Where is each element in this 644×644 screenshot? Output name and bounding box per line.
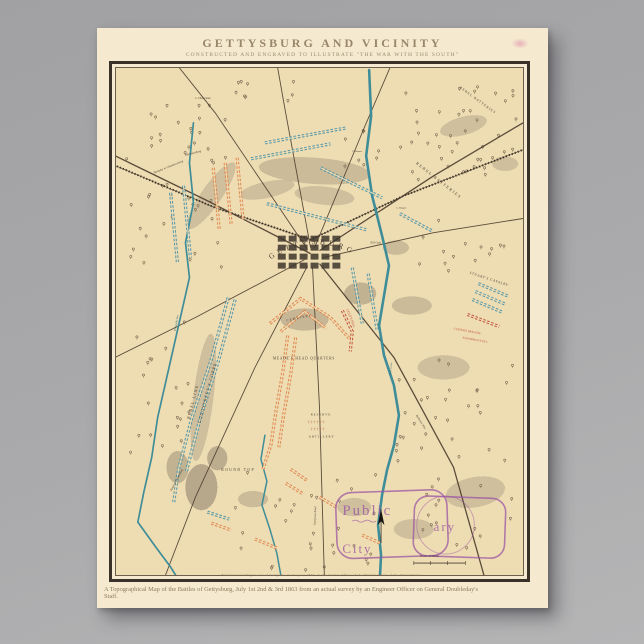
- road: [320, 120, 524, 251]
- map-label: L. Dickerman: [194, 97, 211, 100]
- map-caption: A Topographical Map of the Battles of Ge…: [104, 586, 542, 600]
- town-block: [311, 263, 319, 269]
- photo-background: { "poster": { "title": "GETTYSBURG AND V…: [0, 0, 644, 644]
- town-block: [321, 263, 329, 269]
- map-label: ROUND TOP: [221, 468, 255, 472]
- troop-line-split: [291, 469, 307, 480]
- town-block: [289, 263, 297, 269]
- town-block: [289, 254, 297, 260]
- troop-line-split: [265, 128, 346, 143]
- map-label: CUSTER'S BRIGADE: [453, 327, 481, 336]
- road: [315, 68, 392, 248]
- map-subtitle: CONSTRUCTED AND ENGRAVED TO ILLUSTRATE "…: [97, 52, 548, 58]
- map-title: GETTYSBURG AND VICINITY: [97, 36, 548, 51]
- caption-line1: A Topographical Map of the Battles of Ge…: [104, 586, 478, 593]
- stamp-text: ary: [434, 519, 456, 534]
- town-block: [278, 263, 286, 269]
- troop-line-split: [467, 315, 499, 327]
- caption-line2: Staff.: [104, 593, 118, 600]
- battle-map-svg: GETTYSBURGREBEL BATTERIESREBEL BATTERIES…: [116, 68, 523, 575]
- creek: [261, 435, 281, 575]
- troop-line-split: [237, 158, 243, 220]
- map-label: REBEL BATTERIES: [415, 161, 463, 200]
- troop-line-split: [211, 523, 231, 530]
- town-block: [321, 254, 329, 260]
- stamp-text: Public: [342, 503, 392, 519]
- stamp-text: City: [342, 541, 372, 556]
- map-frame: GETTYSBURGREBEL BATTERIESREBEL BATTERIES…: [109, 61, 530, 582]
- town-block: [332, 254, 340, 260]
- map-label: † † † † † †: [308, 419, 325, 424]
- troop-line-split: [286, 483, 304, 494]
- hills-layer: [167, 111, 518, 539]
- map-label: † † † † †: [311, 426, 325, 431]
- map-label: ARTILLERY: [309, 434, 335, 438]
- map-label: RESERVE: [311, 412, 332, 416]
- troop-line-split: [171, 193, 178, 264]
- map-label: MEADE'S HEAD QUARTERS: [273, 356, 335, 360]
- map-label: Taneytown Road: [314, 506, 318, 525]
- map-label: Mummasburg: [184, 149, 202, 157]
- town-block: [311, 254, 319, 260]
- troop-line-split: [279, 337, 296, 447]
- map-label: A. Heagen: [395, 207, 407, 210]
- imprint-line: Entered according to Act of Congress, in…: [137, 573, 508, 577]
- map-label: C. Benner: [352, 150, 362, 153]
- map-label: KILPATRICK'S DIV.: [462, 336, 488, 344]
- map-poster: GETTYSBURG AND VICINITY CONSTRUCTED AND …: [97, 28, 548, 608]
- map-label: Turnpike to Chambersburg: [153, 159, 185, 175]
- troop-line-split: [207, 512, 229, 519]
- creek: [366, 70, 399, 575]
- town-block: [300, 254, 308, 260]
- scale-label: Scale of Miles: [420, 554, 440, 558]
- town-block: [300, 263, 308, 269]
- troop-line-split: [251, 144, 330, 159]
- road: [164, 266, 308, 575]
- troop-line-split: [400, 214, 432, 231]
- map-paper: GETTYSBURGREBEL BATTERIESREBEL BATTERIES…: [115, 67, 524, 576]
- town-block: [278, 236, 286, 242]
- troop-line-split: [267, 204, 366, 230]
- map-label: Baltimore Pike: [415, 414, 427, 430]
- labels-layer: GETTYSBURGREBEL BATTERIESREBEL BATTERIES…: [153, 86, 510, 526]
- map-label: Toll Gate: [370, 241, 382, 245]
- map-label: Rock Creek: [389, 362, 393, 377]
- map-label: STUART'S CAVALRY: [469, 271, 509, 288]
- pink-smudge: [511, 38, 529, 49]
- town-block: [332, 263, 340, 269]
